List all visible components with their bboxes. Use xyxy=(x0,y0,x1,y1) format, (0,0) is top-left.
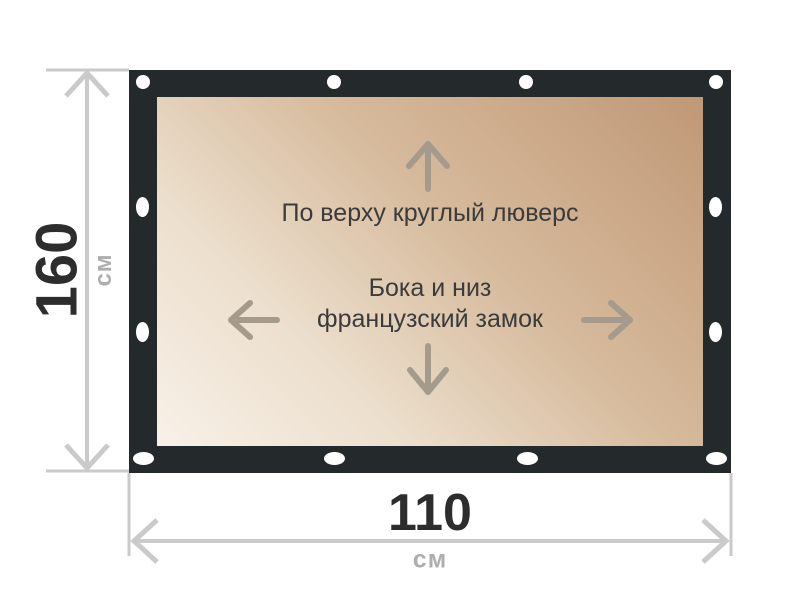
tarp-frame xyxy=(129,70,731,473)
arrowhead-up-icon xyxy=(66,73,108,96)
grommet-icon xyxy=(517,452,538,465)
grommet-icon xyxy=(709,322,722,342)
grommet-icon xyxy=(133,452,154,465)
annotation-sides-line1: Бока и низ xyxy=(157,273,703,304)
grommet-icon xyxy=(709,197,722,217)
grommet-icon xyxy=(709,75,723,89)
grommet-icon xyxy=(324,452,345,465)
arrowhead-right-icon xyxy=(703,520,726,562)
annotation-top-grommet: По верху круглый люверс xyxy=(157,198,703,229)
annotation-sides: Бока и низ французский замок xyxy=(157,273,703,335)
grommet-icon xyxy=(136,75,150,89)
product-diagram: По верху круглый люверс Бока и низ франц… xyxy=(0,0,800,600)
arrowhead-down-icon xyxy=(66,445,108,468)
grommet-icon xyxy=(519,75,533,89)
grommet-icon xyxy=(706,452,727,465)
tarp-canvas xyxy=(157,97,703,446)
arrowhead-left-icon xyxy=(134,520,157,562)
annotation-sides-line2: французский замок xyxy=(157,304,703,335)
height-value: 160 xyxy=(24,222,91,319)
width-value: 110 xyxy=(388,483,472,543)
width-unit: см xyxy=(413,546,447,575)
grommet-icon xyxy=(136,322,149,342)
height-unit: см xyxy=(90,253,118,286)
grommet-icon xyxy=(327,75,341,89)
grommet-icon xyxy=(136,197,149,217)
